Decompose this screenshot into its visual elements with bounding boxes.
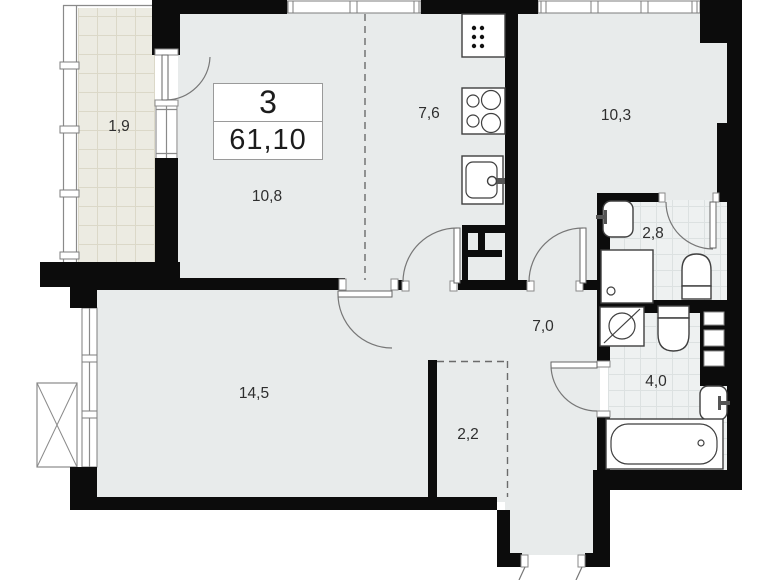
balcony-door-arc [166, 57, 210, 100]
label-bedroom-2-area: 14,5 [239, 385, 269, 403]
window-mullion [692, 1, 697, 13]
window-mullion [414, 1, 419, 13]
wall [428, 360, 437, 497]
wall [727, 43, 742, 490]
wall [421, 0, 538, 14]
washbasin-faucet-icon [718, 396, 721, 410]
label-bedroom-area: 10,3 [601, 107, 631, 125]
door-jamb [597, 411, 610, 417]
door-jamb [339, 279, 346, 290]
window-mullion [82, 355, 97, 362]
label-balcony-area: 1,9 [108, 118, 130, 136]
kitchen-faucet-icon [488, 177, 497, 186]
wall [585, 553, 610, 567]
toilet-icon [658, 318, 689, 351]
door-jamb [578, 555, 585, 567]
label-bathroom-area: 4,0 [645, 373, 667, 391]
door-jamb [713, 193, 719, 202]
wall [593, 470, 742, 490]
window-mullion [591, 1, 598, 13]
glazing-mullion [60, 252, 79, 259]
washbasin-icon [603, 201, 633, 237]
bathroom-door-leaf [551, 362, 597, 368]
room-count: 3 [214, 84, 322, 122]
door-jamb [155, 49, 178, 55]
utility-shaft-cell [704, 351, 724, 366]
glazing-mullion [60, 62, 79, 69]
wall [497, 553, 522, 567]
apartment-info-block: 3 61,10 [213, 83, 323, 160]
window-mullion [82, 411, 97, 418]
shaft-wall [505, 228, 518, 285]
glazing-mullion [60, 126, 79, 133]
balcony-door-leaf [162, 55, 168, 100]
room-door-leaf [338, 291, 392, 297]
utility-shaft-cell [704, 330, 724, 346]
utility-shaft-cell [704, 312, 724, 325]
wall [700, 0, 742, 43]
plan-drawing [0, 0, 780, 580]
room-door-arc [338, 294, 392, 348]
shower-room-door-leaf [710, 202, 716, 248]
door-jamb [521, 555, 528, 567]
shaft-wall [478, 233, 485, 250]
shower-room-door-arc [666, 202, 713, 249]
shaft-wall [462, 225, 468, 285]
bathroom-door-arc [551, 365, 597, 411]
label-shower-room-area: 2,8 [642, 225, 664, 243]
door-jamb [402, 281, 409, 291]
door-jamb [391, 279, 398, 290]
wall [497, 510, 510, 555]
bedroom-door-arc [529, 228, 583, 282]
wall [152, 0, 180, 55]
bedroom-door-leaf [580, 228, 586, 283]
window-mullion [350, 1, 357, 13]
kitchen-door-leaf [454, 228, 460, 283]
door-jamb [527, 281, 534, 291]
wall [717, 123, 729, 195]
wall [70, 497, 497, 510]
glazing-mullion [60, 190, 79, 197]
floor-plan: 3 61,10 1,9 10,8 7,6 10,3 2,8 7,0 14,5 2… [0, 0, 780, 580]
label-hallway-area: 7,0 [532, 318, 554, 336]
window-mullion [288, 1, 293, 13]
washbasin-faucet-icon [604, 210, 607, 224]
shower-tray-icon [601, 250, 653, 303]
label-wardrobe-area: 2,2 [457, 426, 479, 444]
label-kitchen-area: 7,6 [418, 105, 440, 123]
wall [178, 0, 287, 14]
window-mullion [541, 1, 546, 13]
shaft-wall [468, 250, 502, 257]
kitchen-door-arc [403, 228, 457, 282]
entrance-door-lines [519, 567, 582, 580]
shaft-wall [462, 225, 512, 233]
window-bedroom [538, 1, 700, 13]
wall [505, 14, 518, 228]
toilet-tank-icon [658, 306, 689, 318]
door-jamb [597, 361, 610, 367]
toilet-tank-icon [682, 286, 711, 299]
total-area: 61,10 [214, 122, 322, 159]
wall [70, 287, 97, 308]
door-jamb [155, 100, 178, 106]
label-living-room-area: 10,8 [252, 188, 282, 206]
toilet-icon [682, 254, 711, 286]
wall [458, 280, 527, 290]
wall [90, 278, 345, 290]
door-jamb [659, 193, 665, 202]
window-mullion [641, 1, 648, 13]
bathtub-icon [606, 419, 723, 469]
